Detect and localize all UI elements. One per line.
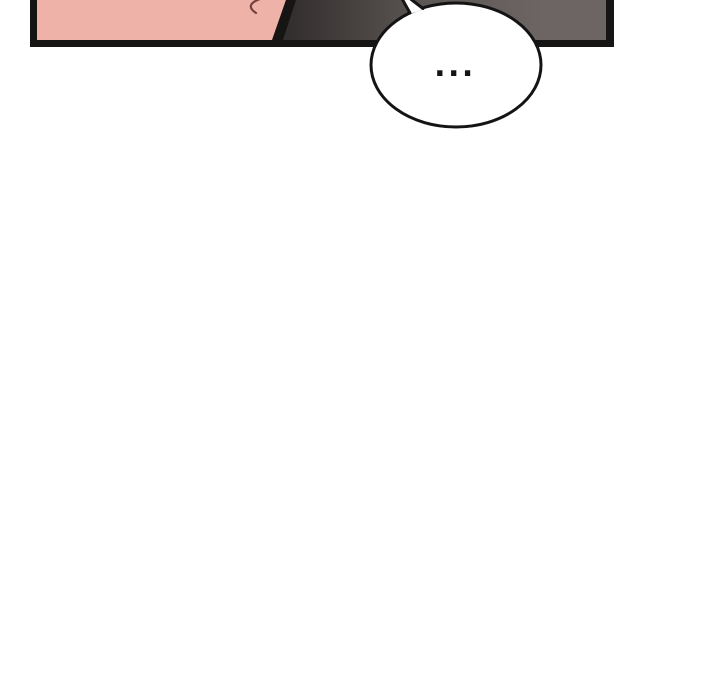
speech-bubble-text: ... [390,53,520,85]
page: ... [0,0,720,700]
comic-top-panel [0,0,720,150]
